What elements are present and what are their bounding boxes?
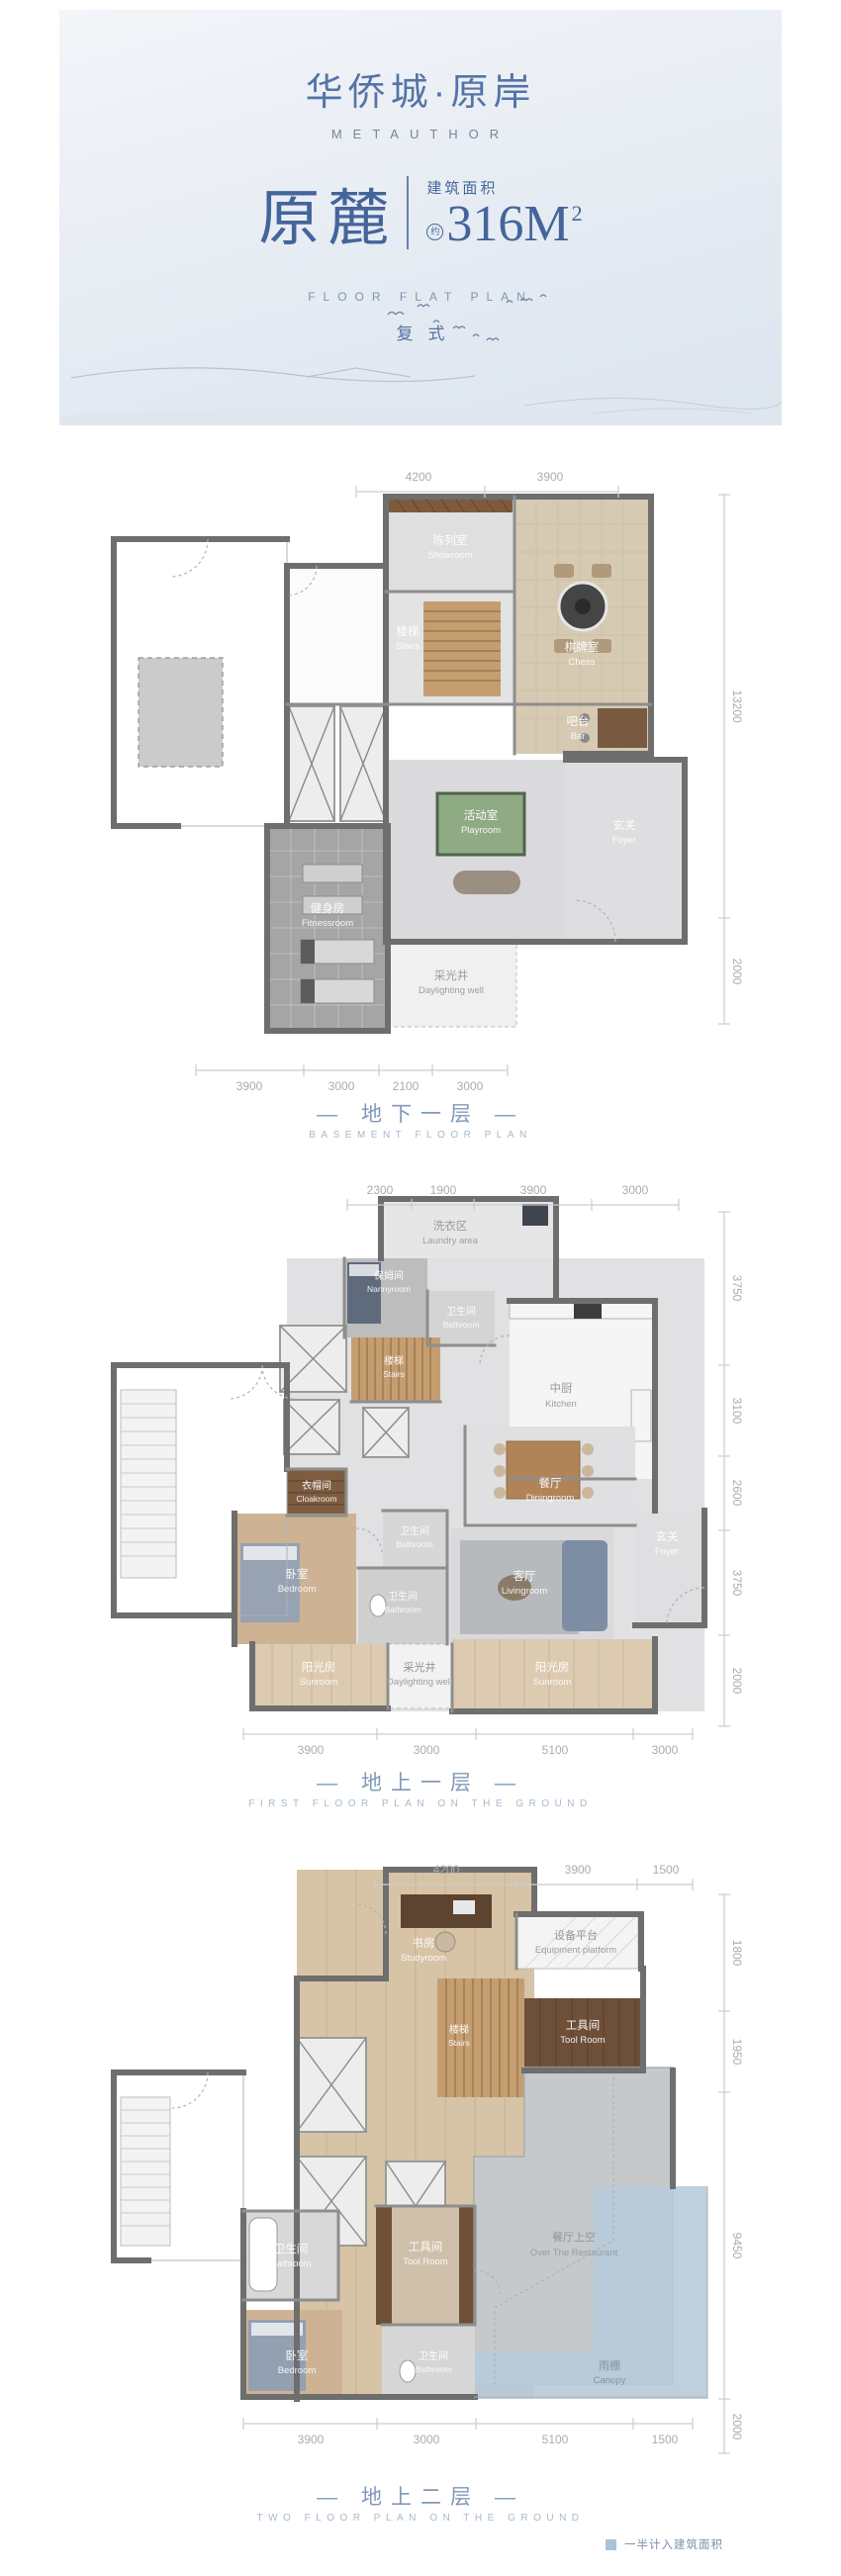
room-label-cn: 设备平台 bbox=[554, 1928, 598, 1942]
caption-basement-cn: — 地下一层 — bbox=[0, 1098, 841, 1128]
dim-top: 2300 bbox=[367, 1183, 394, 1197]
dim-bottom: 1500 bbox=[652, 2433, 679, 2446]
room-label-en: Tool Room bbox=[403, 2256, 447, 2267]
room-label-en: Laundry area bbox=[422, 1236, 479, 1246]
dim-top: 1900 bbox=[430, 1183, 457, 1197]
dim-right: 3100 bbox=[730, 1398, 744, 1425]
dim-right: 13200 bbox=[730, 690, 744, 723]
dim-right: 2600 bbox=[730, 1480, 744, 1507]
flyer-page: 华侨城·原岸 METAUTHOR 原麓 建筑面积 约 316M 2 FLOOR … bbox=[0, 0, 841, 2576]
dim-top: 1500 bbox=[653, 1863, 680, 1877]
room-label-en: Sunroom bbox=[533, 1677, 572, 1688]
storage-pad bbox=[139, 658, 223, 767]
room-label-cn: 玄关 bbox=[656, 1529, 679, 1543]
approx-circle: 约 bbox=[426, 224, 443, 240]
public-stairs bbox=[121, 2097, 170, 2246]
room-label-en: Fitnessroom bbox=[302, 918, 353, 929]
room-label-en: Bedroom bbox=[278, 2365, 317, 2376]
room-label-en: Nannyroom bbox=[367, 1284, 411, 1294]
legend-label: 一半计入建筑面积 bbox=[624, 2536, 723, 2552]
room-label-cn: 卫生间 bbox=[400, 1524, 429, 1537]
room-label-cn: 卫生间 bbox=[388, 1590, 418, 1603]
room-label-en: Daylighting well bbox=[387, 1677, 452, 1688]
room-label-cn: 保姆间 bbox=[374, 1269, 404, 1282]
room-label-cn: 楼梯 bbox=[397, 624, 420, 638]
room-label-en: Chess bbox=[569, 657, 596, 668]
room-label-en: Studyroom bbox=[401, 1953, 446, 1964]
room-label-en: Stairs bbox=[448, 2038, 470, 2048]
room-label-cn: 楼梯 bbox=[449, 2023, 469, 2036]
room-label-en: Bathroom bbox=[385, 1605, 421, 1614]
room-label-en: Bathroom bbox=[416, 2364, 452, 2374]
area-block: 建筑面积 约 316M 2 bbox=[426, 177, 582, 248]
room-label-cn: 玄关 bbox=[613, 818, 636, 832]
basement-floor-plan: 4200 3900 13200 2000 3900 3000 2100 3000… bbox=[59, 445, 752, 1098]
room-label-cn: 餐厅上空 bbox=[552, 2230, 596, 2244]
gym-machine bbox=[303, 865, 362, 882]
room-label-cn: 中厨 bbox=[550, 1382, 573, 1395]
room-label-cn: 陈列室 bbox=[433, 533, 468, 547]
room-label-cn: 卧室 bbox=[286, 1567, 309, 1581]
dim-right: 2000 bbox=[730, 959, 744, 985]
dim-top: 3900 bbox=[537, 470, 564, 484]
caption-first-cn: — 地上一层 — bbox=[0, 1767, 841, 1796]
dim-right: 3750 bbox=[730, 1275, 744, 1302]
room-label-cn: 卫生间 bbox=[274, 2242, 309, 2255]
dim-right: 2000 bbox=[730, 1668, 744, 1695]
caption-second-cn: — 地上二层 — bbox=[0, 2481, 841, 2511]
room-label-en: Stairs bbox=[396, 641, 420, 652]
legend: 一半计入建筑面积 bbox=[606, 2536, 723, 2552]
second-floor-plan: 4200 3900 1500 1800 1950 9450 2000 3900 … bbox=[59, 1845, 752, 2488]
hero-banner: 华侨城·原岸 METAUTHOR 原麓 建筑面积 约 316M 2 FLOOR … bbox=[59, 10, 782, 425]
bar-counter bbox=[598, 708, 647, 748]
room-label-en: Bathroom bbox=[397, 1539, 433, 1549]
foyer-floor bbox=[635, 1511, 704, 1625]
room-label-en: Foyer bbox=[612, 835, 636, 846]
desk-chair bbox=[435, 1932, 455, 1952]
room-label-en: Daylighting well bbox=[419, 985, 484, 996]
title-divider bbox=[407, 176, 409, 249]
tool-room-top-floor bbox=[524, 1998, 643, 2068]
room-label-en: Equipment platform bbox=[535, 1945, 616, 1956]
foyer-floor bbox=[564, 760, 685, 942]
room-label-en: Foyer bbox=[655, 1546, 679, 1557]
room-label-cn: 吧台 bbox=[567, 714, 590, 728]
dim-bottom: 3000 bbox=[652, 1743, 679, 1757]
playroom-table bbox=[437, 793, 524, 855]
dim-top: 3900 bbox=[565, 1863, 592, 1877]
area-label: 建筑面积 bbox=[426, 177, 498, 198]
dim-bottom: 3000 bbox=[457, 1079, 484, 1093]
dim-top: 3900 bbox=[520, 1183, 547, 1197]
dim-bottom: 2100 bbox=[393, 1079, 420, 1093]
dim-bottom: 3900 bbox=[236, 1079, 263, 1093]
dim-bottom: 5100 bbox=[542, 2433, 569, 2446]
room-label-en: Playroom bbox=[461, 825, 501, 836]
dining-table bbox=[507, 1441, 580, 1499]
room-label-cn: 衣帽间 bbox=[302, 1479, 331, 1492]
room-label-cn: 洗衣区 bbox=[433, 1219, 468, 1233]
room-label-en: Canopy bbox=[594, 2375, 626, 2386]
dim-right: 2000 bbox=[730, 2414, 744, 2440]
room-label-cn: 采光井 bbox=[434, 968, 469, 982]
brand-logo: 华侨城·原岸 bbox=[59, 61, 782, 116]
room-label-en: Kitchen bbox=[545, 1399, 577, 1410]
dim-bottom: 3000 bbox=[414, 2433, 440, 2446]
dim-right: 9450 bbox=[730, 2233, 744, 2259]
room-label-cn: 卫生间 bbox=[446, 1305, 476, 1318]
room-label-en: Bedroom bbox=[278, 1584, 317, 1595]
dim-bottom: 3000 bbox=[328, 1079, 355, 1093]
room-label-cn: 卧室 bbox=[286, 2348, 309, 2362]
room-label-cn: 餐厅 bbox=[539, 1476, 562, 1490]
caption-second-en: TWO FLOOR PLAN ON THE GROUND bbox=[0, 2513, 841, 2524]
elevator-lobby bbox=[287, 566, 386, 704]
showroom-cabinet bbox=[388, 499, 513, 512]
room-label-cn: 阳光房 bbox=[302, 1660, 336, 1674]
legend-color-swatch bbox=[606, 2539, 616, 2550]
birds-icon bbox=[388, 295, 546, 340]
room-label-cn: 雨棚 bbox=[599, 2358, 620, 2372]
room-label-en: Bathroom bbox=[443, 1320, 480, 1330]
playroom-sofa bbox=[453, 871, 520, 894]
room-label-en: Sunroom bbox=[300, 1677, 338, 1688]
room-label-en: Diningroom bbox=[526, 1493, 575, 1504]
room-label-en: Livingroom bbox=[502, 1586, 548, 1597]
dim-right: 3750 bbox=[730, 1570, 744, 1597]
mountain-ridges bbox=[59, 368, 782, 425]
room-label-cn: 书房 bbox=[413, 1937, 435, 1950]
area-value: 316M bbox=[446, 200, 569, 248]
dim-top: 4200 bbox=[406, 470, 432, 484]
room-label-en: Cloakroom bbox=[296, 1494, 336, 1504]
room-label-cn: 工具间 bbox=[409, 2241, 443, 2254]
caption-first-en: FIRST FLOOR PLAN ON THE GROUND bbox=[0, 1798, 841, 1809]
room-label-en: Bathroom bbox=[270, 2258, 311, 2269]
room-label-en: Tool Room bbox=[560, 2035, 605, 2046]
dim-top: 4200 bbox=[433, 1863, 460, 1877]
bath-top-floor bbox=[427, 1291, 495, 1345]
room-label-cn: 工具间 bbox=[566, 2019, 601, 2032]
brand-logo-en: METAUTHOR bbox=[59, 127, 782, 141]
unit-name: 原麓 bbox=[258, 168, 397, 257]
room-label-en: Bar bbox=[571, 731, 586, 742]
stairs-treads bbox=[423, 601, 501, 696]
area-superscript: 2 bbox=[572, 201, 583, 227]
room-label-cn: 健身房 bbox=[311, 901, 345, 915]
room-label-cn: 客厅 bbox=[514, 1569, 536, 1583]
room-label-cn: 楼梯 bbox=[384, 1354, 404, 1367]
dim-top: 3000 bbox=[622, 1183, 649, 1197]
room-label-cn: 卫生间 bbox=[419, 2349, 448, 2362]
room-label-en: Over The Restaurant bbox=[530, 2248, 618, 2258]
dim-bottom: 3900 bbox=[298, 1743, 325, 1757]
study-desk bbox=[401, 1894, 492, 1928]
room-label-cn: 活动室 bbox=[464, 808, 499, 822]
caption-basement-en: BASEMENT FLOOR PLAN bbox=[0, 1130, 841, 1141]
dim-bottom: 5100 bbox=[542, 1743, 569, 1757]
unit-title-row: 原麓 建筑面积 约 316M 2 bbox=[59, 168, 782, 257]
stove bbox=[574, 1303, 602, 1319]
toilet bbox=[400, 2360, 416, 2382]
dim-bottom: 3900 bbox=[298, 2433, 325, 2446]
room-label-cn: 采光井 bbox=[404, 1660, 436, 1674]
room-label-cn: 棋牌室 bbox=[565, 640, 600, 654]
washer bbox=[522, 1204, 548, 1226]
first-floors bbox=[114, 1199, 704, 1711]
dim-bottom: 3000 bbox=[414, 1743, 440, 1757]
first-floor-plan: 2300 1900 3900 3000 3750 3100 2600 3750 … bbox=[59, 1152, 752, 1786]
dim-right: 1950 bbox=[730, 2039, 744, 2066]
dim-right: 1800 bbox=[730, 1940, 744, 1967]
sunroom-right-floor bbox=[452, 1639, 655, 1711]
room-label-en: Stairs bbox=[383, 1369, 405, 1379]
sofa bbox=[562, 1540, 607, 1631]
daylight-well-floor bbox=[388, 942, 516, 1027]
mountain-birds-art bbox=[59, 257, 782, 425]
second-floors bbox=[114, 1870, 707, 2399]
room-label-cn: 阳光房 bbox=[535, 1660, 570, 1674]
room-label-en: Showroom bbox=[427, 550, 472, 561]
